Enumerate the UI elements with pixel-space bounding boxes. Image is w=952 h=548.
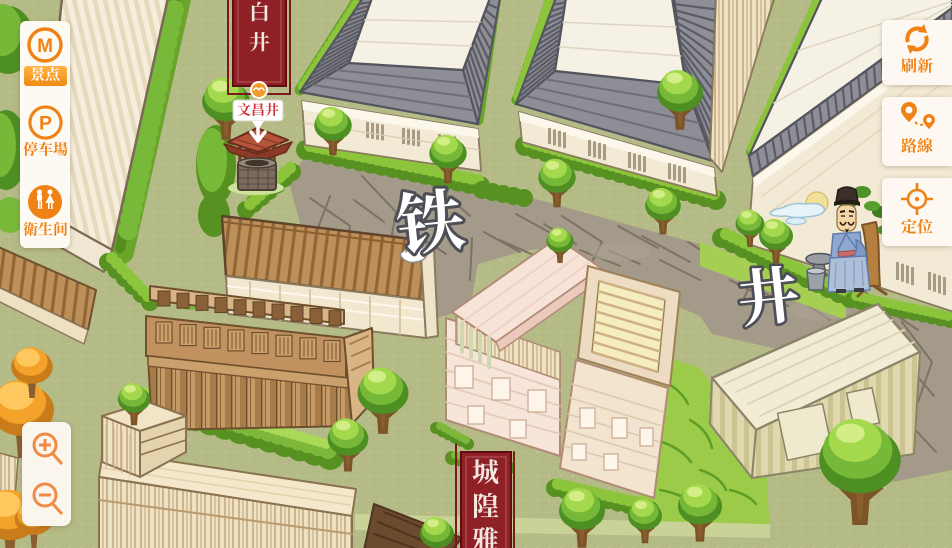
svg-text:P: P [39,112,52,134]
svg-text:M: M [37,36,53,57]
